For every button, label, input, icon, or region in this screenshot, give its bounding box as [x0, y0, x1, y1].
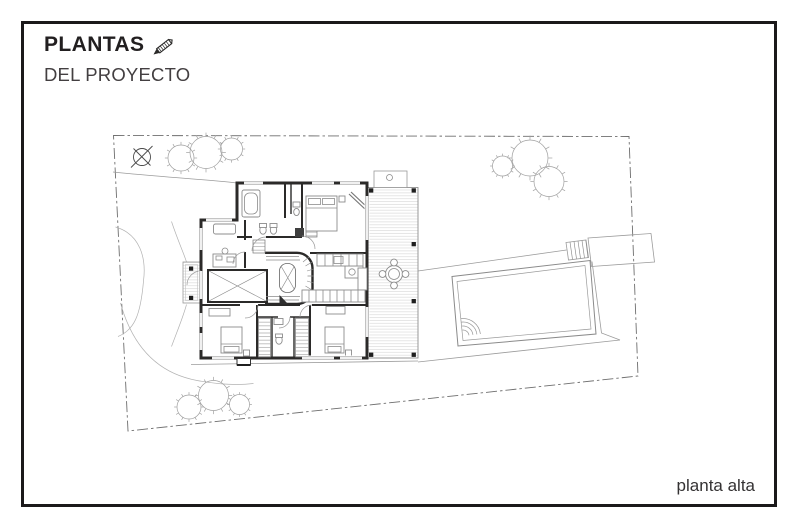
wood-deck [368, 171, 419, 358]
kitchen-island [302, 290, 365, 302]
bed-master [306, 196, 337, 231]
pool [452, 261, 596, 347]
kitchen-counter [317, 254, 363, 266]
north-arrow-icon [131, 146, 153, 168]
house-plan [187, 181, 370, 366]
service-structure [588, 234, 655, 267]
tree-cluster-top-left [165, 133, 245, 174]
tree-cluster-bottom [174, 377, 252, 422]
pool-area [418, 234, 655, 363]
deck-planter [374, 171, 407, 188]
threshold-step [237, 359, 251, 366]
tree-cluster-top-right [490, 136, 567, 200]
floor-plan-drawing [0, 0, 800, 532]
slide: PLANTAS DEL PROYECTO planta alta [0, 0, 800, 532]
pool-entry-steps [566, 240, 589, 260]
void-double-height [208, 270, 267, 302]
entry-porch [183, 262, 200, 303]
